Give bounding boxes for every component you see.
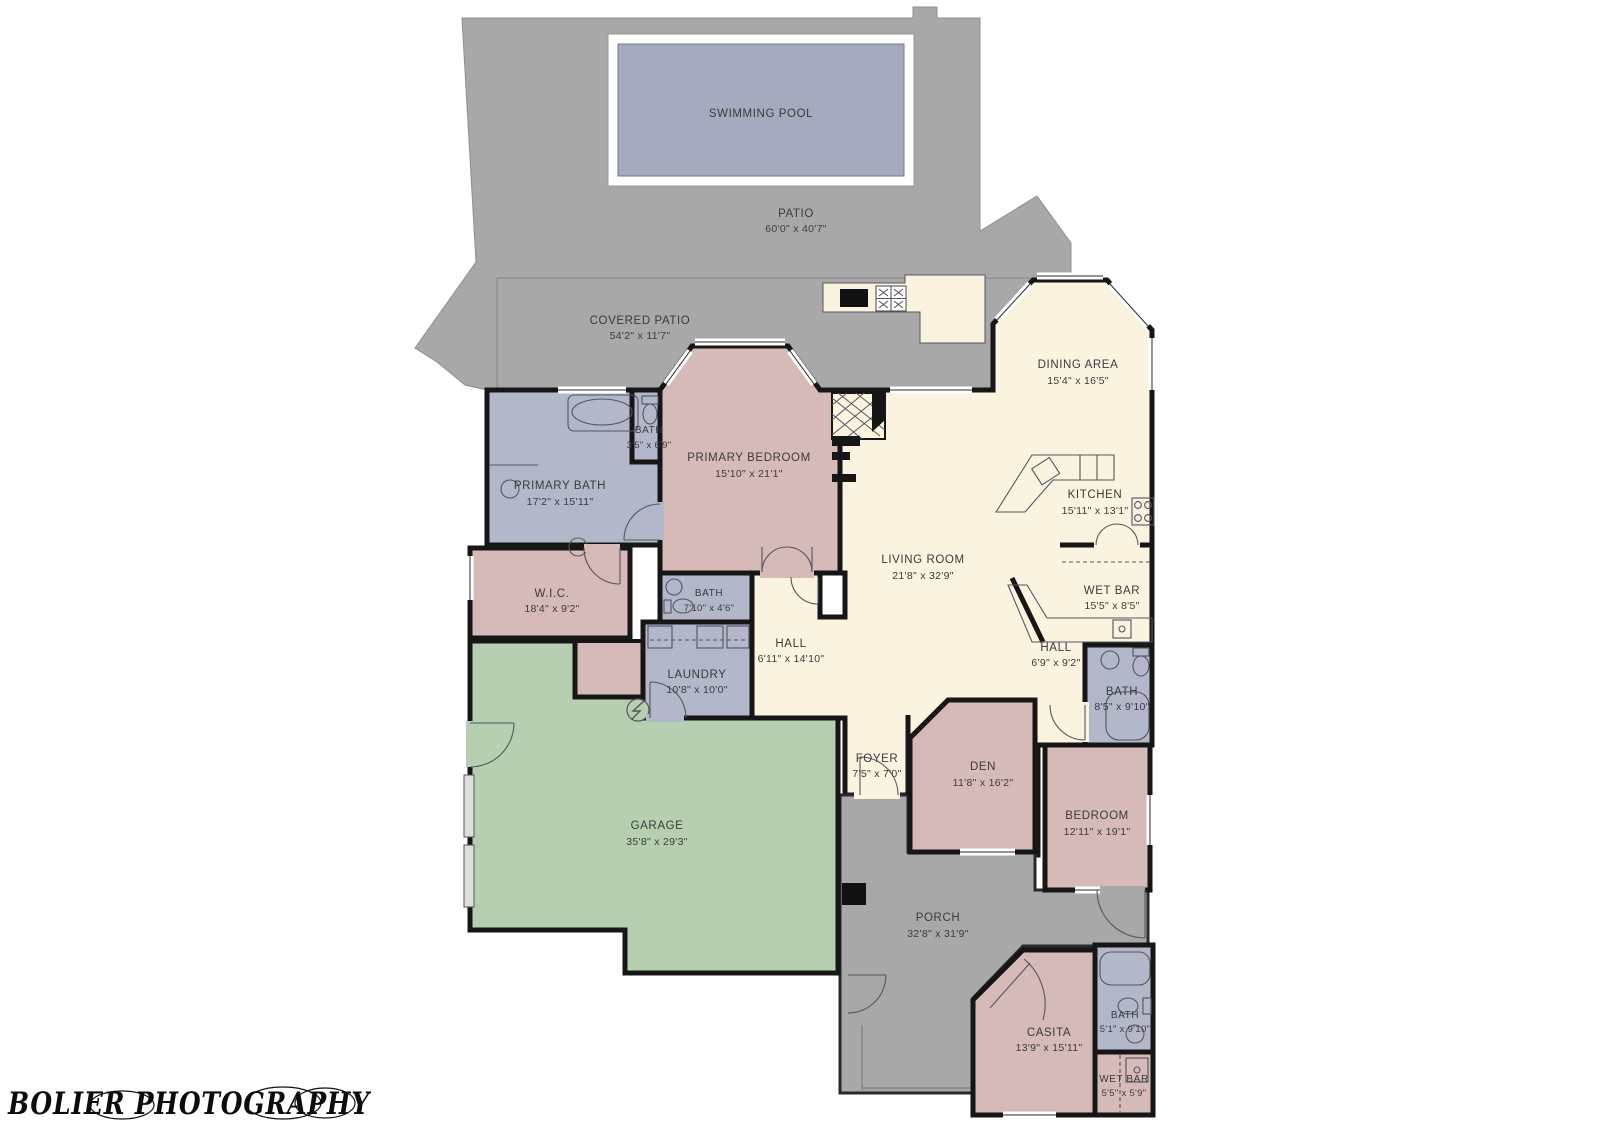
outdoor-cooktop-icon [876,286,906,311]
guest-bath-label: BATH [1106,686,1138,698]
primary-bath-dims: 17'2" x 15'11" [527,496,594,508]
garage-dims: 35'8" x 29'3" [626,836,688,848]
wetbar-label: WET BAR [1084,585,1140,597]
casita-bath-dims: 5'1" x 9'10" [1100,1024,1150,1035]
living-room-label: LIVING ROOM [881,554,964,566]
outdoor-grill-icon [840,289,868,307]
casita-dims: 13'9" x 15'11" [1016,1042,1083,1054]
den-dims: 11'8" x 16'2" [953,777,1014,789]
hall-west-dims: 6'11" x 14'10" [758,653,825,665]
garage-label: GARAGE [631,820,684,832]
floor-plan-drawing: PATIO 60'0" x 40'7" COVERED PATIO 54'2" … [0,0,1600,1133]
den-room [910,700,1035,852]
patio-label: PATIO [778,208,814,220]
photographer-watermark: BOLIER PHOTOGRAPHY [7,1086,371,1122]
living-room-dims: 21'8" x 32'9" [892,570,954,582]
kitchen-label: KITCHEN [1068,489,1123,501]
bedroom-label: BEDROOM [1065,810,1129,822]
guest-bath-dims: 8'5" x 9'10" [1094,701,1149,713]
small-bath-label: BATH [635,425,663,436]
wic-label: W.I.C. [535,588,570,600]
primary-bedroom-label: PRIMARY BEDROOM [687,452,811,464]
kitchen-dims: 15'11" x 13'1" [1062,505,1129,517]
casita-wetbar-label: WET BAR [1099,1074,1149,1085]
foyer-label: FOYER [856,753,899,765]
wetbar-dims: 15'5" x 8'5" [1084,600,1139,612]
primary-bedroom-dims: 15'10" x 21'1" [715,468,783,480]
garage-door-2 [464,845,474,907]
patio-dims: 60'0" x 40'7" [765,223,827,235]
hall-bath-dims: 7'10" x 4'6" [684,603,734,614]
covered-patio-dims: 54'2" x 11'7" [610,330,671,342]
dining-dims: 15'4" x 16'5" [1047,375,1109,387]
wic-hall-strip [575,641,643,697]
den-label: DEN [970,761,996,773]
casita-wetbar-dims: 5'5" x 5'9" [1102,1088,1147,1099]
hall-east-dims: 6'9" x 9'2" [1031,657,1080,669]
bedroom-dims: 12'11" x 19'1" [1064,826,1131,838]
floor-plan-page: PATIO 60'0" x 40'7" COVERED PATIO 54'2" … [0,0,1600,1133]
watermark-text: BOLIER PHOTOGRAPHY [7,1086,371,1122]
covered-patio-label: COVERED PATIO [590,315,691,327]
small-bath-dims: 3'5" x 6'9" [627,440,672,451]
laundry-dims: 10'8" x 10'0" [666,684,728,696]
casita-bath-label: BATH [1111,1010,1139,1021]
wic-dims: 18'4" x 9'2" [524,603,579,615]
laundry-label: LAUNDRY [668,669,727,681]
porch-label: PORCH [916,912,961,924]
garage-door-1 [464,775,474,837]
porch-dims: 32'8" x 31'9" [907,928,969,940]
foyer-dims: 7'5" x 7'0" [852,768,901,780]
porch-post [842,883,866,905]
hall-west-label: HALL [775,638,806,650]
hall-bath-label: BATH [695,588,723,599]
pool-label: SWIMMING POOL [709,108,813,120]
casita-label: CASITA [1027,1027,1071,1039]
electrical-panel-icon [627,699,649,721]
primary-bath-label: PRIMARY BATH [514,480,606,492]
dining-label: DINING AREA [1038,359,1119,371]
hall-east-label: HALL [1040,642,1071,654]
hall-closet [820,573,845,617]
